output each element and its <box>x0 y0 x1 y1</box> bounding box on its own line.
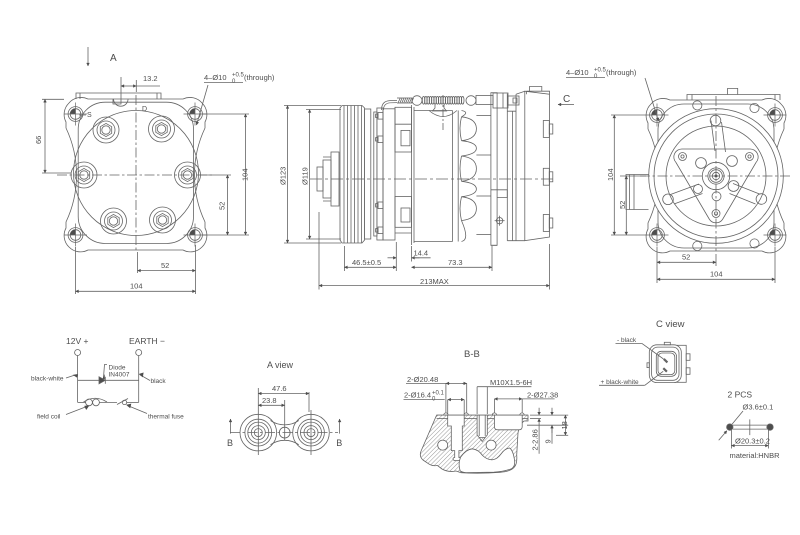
svg-text:2-Ø27.38: 2-Ø27.38 <box>527 391 558 400</box>
svg-text:104: 104 <box>130 282 143 291</box>
svg-text:B: B <box>227 438 233 448</box>
svg-text:A view: A view <box>267 360 294 370</box>
svg-text:52: 52 <box>161 261 169 270</box>
svg-text:46.5±0.5: 46.5±0.5 <box>352 258 381 267</box>
svg-text:2-Ø16.4: 2-Ø16.4 <box>404 391 431 400</box>
svg-text:S: S <box>87 112 92 119</box>
svg-text:104: 104 <box>710 270 723 279</box>
svg-text:EARTH −: EARTH − <box>129 336 165 346</box>
svg-text:104: 104 <box>241 168 250 181</box>
svg-text:0: 0 <box>232 79 236 85</box>
svg-text:material:HNBR: material:HNBR <box>730 451 781 460</box>
svg-text:52: 52 <box>618 201 627 209</box>
svg-text:12V +: 12V + <box>66 336 88 346</box>
svg-text:Diode: Diode <box>109 365 126 372</box>
svg-text:13.2: 13.2 <box>143 74 158 83</box>
svg-text:4–Ø10: 4–Ø10 <box>204 73 227 82</box>
svg-text:black-white: black-white <box>31 376 64 383</box>
svg-text:M10X1.5-6H: M10X1.5-6H <box>490 378 532 387</box>
svg-text:field coil: field coil <box>37 414 61 421</box>
svg-text:(through): (through) <box>244 73 275 82</box>
svg-text:+0.5: +0.5 <box>232 73 245 79</box>
svg-text:2-Ø20.48: 2-Ø20.48 <box>407 375 438 384</box>
svg-text:IN4007: IN4007 <box>109 372 130 379</box>
svg-text:23.8: 23.8 <box>262 396 277 405</box>
svg-text:Ø3.6±0.1: Ø3.6±0.1 <box>743 403 774 412</box>
svg-text:104: 104 <box>606 168 615 181</box>
svg-text:9: 9 <box>544 439 553 443</box>
svg-text:52: 52 <box>682 253 690 262</box>
svg-text:18: 18 <box>560 421 569 429</box>
svg-text:66: 66 <box>34 136 43 144</box>
svg-text:52: 52 <box>218 202 227 210</box>
svg-text:14.4: 14.4 <box>414 249 429 258</box>
svg-text:black: black <box>151 378 167 385</box>
svg-text:C: C <box>563 94 570 105</box>
svg-text:47.6: 47.6 <box>272 384 287 393</box>
svg-text:A: A <box>110 53 117 64</box>
svg-text:- black: - black <box>617 337 637 344</box>
svg-text:B-B: B-B <box>464 349 480 360</box>
svg-text:2 PCS: 2 PCS <box>728 390 753 400</box>
svg-text:213MAX: 213MAX <box>420 277 449 286</box>
svg-text:D: D <box>142 106 147 113</box>
svg-text:0: 0 <box>594 74 598 80</box>
svg-text:73.3: 73.3 <box>448 258 463 267</box>
svg-text:+0.5: +0.5 <box>594 68 607 74</box>
svg-text:Ø119: Ø119 <box>301 167 310 185</box>
svg-text:C view: C view <box>656 319 685 330</box>
svg-text:thermal fuse: thermal fuse <box>148 414 184 421</box>
svg-text:(through): (through) <box>606 68 637 77</box>
svg-text:4–Ø10: 4–Ø10 <box>566 68 589 77</box>
svg-text:B: B <box>336 438 342 448</box>
svg-text:Ø123: Ø123 <box>279 167 288 185</box>
svg-text:2-2.86: 2-2.86 <box>530 429 539 450</box>
svg-text:Ø20.3±0.2: Ø20.3±0.2 <box>735 436 770 445</box>
